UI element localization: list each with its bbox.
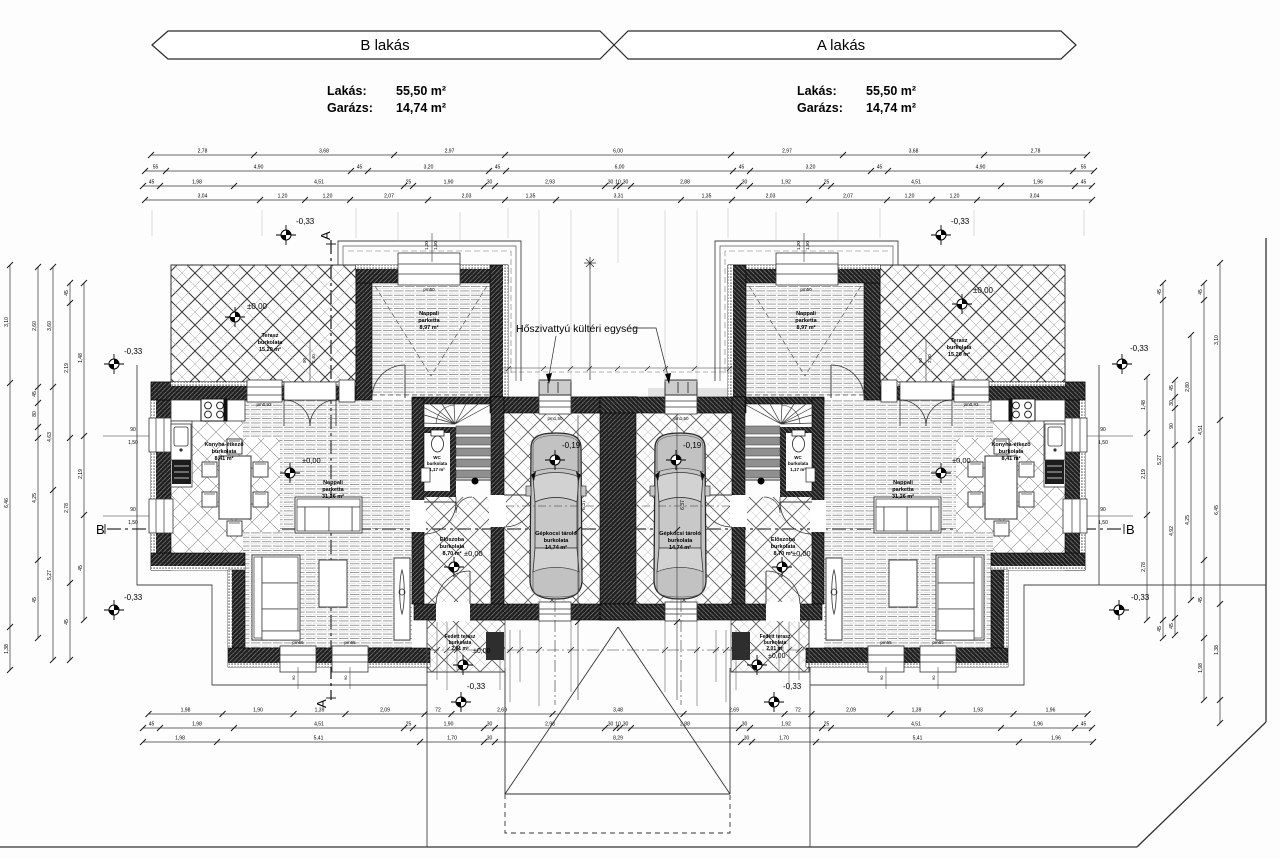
svg-text:4,51: 4,51	[314, 722, 324, 728]
svg-text:90: 90	[130, 427, 136, 433]
svg-text:-0,33: -0,33	[951, 217, 970, 226]
svg-text:1,98: 1,98	[192, 180, 202, 186]
svg-text:1,90: 1,90	[253, 708, 263, 714]
svg-text:1,50: 1,50	[433, 241, 438, 250]
svg-text:5,27: 5,27	[1157, 455, 1163, 465]
svg-text:1,92: 1,92	[781, 722, 791, 728]
svg-text:pm1,50: pm1,50	[547, 416, 563, 421]
svg-text:1,70: 1,70	[447, 736, 457, 742]
svg-text:1,20: 1,20	[278, 194, 288, 200]
svg-text:25: 25	[406, 180, 412, 186]
svg-text:45: 45	[1198, 289, 1204, 295]
svg-text:3,68: 3,68	[319, 149, 329, 155]
svg-text:30: 30	[623, 722, 629, 728]
svg-text:5,41: 5,41	[913, 736, 923, 742]
svg-text:2,78: 2,78	[198, 149, 208, 155]
svg-text:2,60: 2,60	[32, 321, 38, 331]
svg-text:Nappali: Nappali	[323, 480, 343, 486]
svg-text:30: 30	[742, 180, 748, 186]
svg-text:Előszoba: Előszoba	[440, 537, 465, 543]
svg-text:-0,19: -0,19	[683, 441, 702, 450]
svg-text:15,20 m²: 15,20 m²	[259, 346, 281, 353]
svg-text:1,39: 1,39	[912, 708, 922, 714]
svg-text:3,31: 3,31	[614, 194, 624, 200]
svg-text:4,51: 4,51	[1198, 425, 1204, 435]
svg-text:2,07: 2,07	[843, 194, 853, 200]
svg-text:45: 45	[877, 165, 883, 171]
svg-text:4,92: 4,92	[1169, 526, 1175, 536]
svg-text:6,37: 6,37	[680, 500, 686, 510]
svg-text:1,96: 1,96	[1051, 736, 1061, 742]
svg-text:4,51: 4,51	[911, 180, 921, 186]
svg-text:±0,00: ±0,00	[973, 286, 994, 295]
svg-text:6,46: 6,46	[4, 498, 10, 508]
svg-text:30: 30	[487, 722, 493, 728]
svg-text:1,98: 1,98	[175, 736, 185, 742]
svg-text:15,20 m²: 15,20 m²	[948, 351, 970, 358]
svg-text:90: 90	[918, 357, 923, 363]
svg-text:Garázs:: Garázs:	[797, 101, 843, 115]
svg-text:45: 45	[495, 165, 501, 171]
svg-text:1,20: 1,20	[323, 194, 333, 200]
svg-text:1,17 m²: 1,17 m²	[790, 467, 806, 472]
svg-text:14,74 m²: 14,74 m²	[866, 101, 916, 115]
svg-text:1,35: 1,35	[526, 194, 536, 200]
svg-text:pm0,93: pm0,93	[256, 402, 272, 407]
svg-text:10: 10	[615, 722, 621, 728]
svg-text:Hőszivattyú kültéri egység: Hőszivattyú kültéri egység	[516, 323, 638, 335]
svg-text:90: 90	[1100, 427, 1106, 433]
svg-text:45: 45	[1081, 722, 1087, 728]
svg-text:2,40: 2,40	[927, 354, 932, 363]
svg-text:90: 90	[1100, 507, 1106, 513]
svg-text:1,38: 1,38	[4, 644, 10, 654]
svg-text:burkolata: burkolata	[771, 544, 797, 550]
svg-text:14,74 m²: 14,74 m²	[545, 544, 567, 551]
svg-text:30: 30	[1169, 400, 1175, 406]
svg-text:2,09: 2,09	[846, 708, 856, 714]
svg-text:1,98: 1,98	[181, 708, 191, 714]
svg-text:8,97 m²: 8,97 m²	[797, 324, 816, 331]
svg-text:B lakás: B lakás	[360, 37, 409, 54]
svg-text:55: 55	[1081, 165, 1087, 171]
svg-text:pm0,93: pm0,93	[963, 402, 979, 407]
svg-text:pm50: pm50	[800, 287, 812, 292]
svg-text:A: A	[318, 231, 333, 240]
svg-text:1,90: 1,90	[444, 722, 454, 728]
svg-text:90: 90	[291, 675, 296, 680]
svg-text:3,10: 3,10	[4, 317, 10, 327]
svg-text:parketta: parketta	[322, 487, 344, 493]
svg-text:3,04: 3,04	[198, 194, 208, 200]
svg-text:2,69: 2,69	[729, 708, 739, 714]
svg-text:burkolata: burkolata	[999, 449, 1025, 455]
svg-text:45: 45	[1157, 626, 1163, 632]
svg-text:WC: WC	[433, 455, 441, 460]
svg-text:4,25: 4,25	[1185, 515, 1191, 525]
svg-text:3,10: 3,10	[1214, 335, 1220, 345]
svg-text:burkolata: burkolata	[947, 345, 973, 351]
svg-text:3,68: 3,68	[909, 149, 919, 155]
svg-text:burkolata: burkolata	[440, 544, 466, 550]
svg-text:45: 45	[32, 597, 38, 603]
svg-text:Lakás:: Lakás:	[797, 84, 837, 98]
svg-text:1,38: 1,38	[1214, 645, 1220, 655]
svg-text:pm1,50: pm1,50	[673, 416, 689, 421]
svg-text:45: 45	[1198, 597, 1204, 603]
svg-text:30: 30	[608, 722, 614, 728]
svg-text:72: 72	[435, 708, 441, 714]
svg-text:2,07: 2,07	[384, 194, 394, 200]
svg-text:Garázs:: Garázs:	[327, 101, 373, 115]
svg-text:45: 45	[32, 391, 38, 397]
svg-text:90: 90	[879, 675, 884, 680]
svg-text:2,97: 2,97	[782, 149, 792, 155]
svg-text:90: 90	[343, 675, 348, 680]
svg-text:45: 45	[64, 290, 70, 296]
svg-text:30: 30	[744, 736, 750, 742]
svg-text:2,03: 2,03	[766, 194, 776, 200]
svg-text:45: 45	[1157, 289, 1163, 295]
svg-text:parketta: parketta	[892, 487, 914, 493]
svg-text:pm50: pm50	[423, 287, 435, 292]
svg-text:3,48: 3,48	[613, 708, 623, 714]
svg-text:45: 45	[1169, 623, 1175, 629]
svg-text:2,78: 2,78	[1141, 562, 1147, 572]
svg-text:1,50: 1,50	[1098, 520, 1108, 526]
svg-text:A lakás: A lakás	[817, 37, 865, 54]
svg-text:1,50: 1,50	[805, 241, 810, 250]
svg-text:Nappali: Nappali	[419, 311, 439, 317]
svg-text:30: 30	[487, 736, 493, 742]
svg-text:B: B	[1126, 522, 1135, 537]
svg-text:45: 45	[1081, 180, 1087, 186]
svg-text:45: 45	[149, 722, 155, 728]
svg-text:55,50 m²: 55,50 m²	[396, 84, 446, 98]
svg-text:pm65: pm65	[292, 640, 304, 645]
svg-text:8,97 m²: 8,97 m²	[420, 324, 439, 331]
svg-text:45: 45	[739, 165, 745, 171]
svg-text:B: B	[96, 522, 105, 537]
svg-text:3,04: 3,04	[1030, 194, 1040, 200]
svg-text:45: 45	[149, 180, 155, 186]
svg-text:2,01 m²: 2,01 m²	[451, 646, 469, 652]
svg-text:1,96: 1,96	[1046, 708, 1056, 714]
svg-text:2,40: 2,40	[311, 354, 316, 363]
svg-text:4,51: 4,51	[911, 722, 921, 728]
svg-text:2,19: 2,19	[1141, 469, 1147, 479]
svg-text:8,70 m²: 8,70 m²	[774, 550, 793, 557]
svg-text:Nappali: Nappali	[893, 480, 913, 486]
svg-text:Előszoba: Előszoba	[771, 537, 796, 543]
svg-text:55: 55	[153, 165, 159, 171]
svg-text:1,20: 1,20	[905, 194, 915, 200]
svg-text:burkolata: burkolata	[788, 461, 809, 466]
svg-text:2,19: 2,19	[78, 469, 84, 479]
svg-text:WC: WC	[794, 455, 802, 460]
svg-text:8,29: 8,29	[613, 736, 623, 742]
svg-text:4,51: 4,51	[314, 180, 324, 186]
svg-text:1,17 m²: 1,17 m²	[429, 467, 445, 472]
svg-text:Nappali: Nappali	[796, 311, 816, 317]
svg-text:pm65: pm65	[344, 640, 356, 645]
svg-text:burkolata: burkolata	[668, 538, 694, 544]
svg-text:6,00: 6,00	[613, 149, 623, 155]
svg-text:Lakás:: Lakás:	[327, 84, 367, 98]
svg-text:-0,33: -0,33	[1131, 593, 1150, 602]
svg-text:45: 45	[357, 165, 363, 171]
svg-text:90: 90	[931, 675, 936, 680]
svg-text:-0,33: -0,33	[467, 682, 486, 691]
svg-text:-0,33: -0,33	[124, 593, 143, 602]
svg-text:45: 45	[78, 565, 84, 571]
svg-text:4,90: 4,90	[254, 165, 264, 171]
svg-text:90: 90	[1169, 423, 1175, 429]
svg-text:burkolata: burkolata	[258, 340, 284, 346]
svg-text:3,20: 3,20	[424, 165, 434, 171]
svg-text:1,90: 1,90	[444, 180, 454, 186]
svg-text:1,92: 1,92	[781, 180, 791, 186]
svg-text:Konyha-étkező: Konyha-étkező	[991, 442, 1031, 448]
svg-text:parketta: parketta	[795, 318, 817, 324]
svg-text:-0,33: -0,33	[124, 347, 143, 356]
svg-text:10: 10	[615, 180, 621, 186]
svg-text:14,74 m²: 14,74 m²	[669, 544, 691, 551]
svg-text:1,96: 1,96	[1033, 722, 1043, 728]
svg-text:A: A	[314, 699, 329, 708]
svg-text:8,70 m²: 8,70 m²	[443, 550, 462, 557]
svg-text:2,78: 2,78	[1031, 149, 1041, 155]
svg-text:2,69: 2,69	[497, 708, 507, 714]
svg-text:2,19: 2,19	[64, 363, 70, 373]
svg-text:2,03: 2,03	[462, 194, 472, 200]
svg-text:1,48: 1,48	[78, 353, 84, 363]
svg-text:45: 45	[1169, 385, 1175, 391]
svg-text:90: 90	[302, 357, 307, 363]
svg-text:31,26 m²: 31,26 m²	[892, 493, 914, 500]
svg-text:25: 25	[824, 722, 830, 728]
svg-text:2,93: 2,93	[545, 180, 555, 186]
svg-text:±0,00: ±0,00	[768, 653, 786, 660]
svg-text:burkolata: burkolata	[427, 461, 448, 466]
svg-text:30: 30	[487, 180, 493, 186]
svg-text:25: 25	[824, 180, 830, 186]
svg-text:±0,00: ±0,00	[473, 648, 491, 655]
svg-text:3,20: 3,20	[806, 165, 816, 171]
svg-text:2,09: 2,09	[380, 708, 390, 714]
svg-text:1,20: 1,20	[950, 194, 960, 200]
svg-text:25: 25	[406, 722, 412, 728]
svg-text:4,63: 4,63	[47, 432, 53, 442]
svg-text:burkolata: burkolata	[544, 538, 570, 544]
svg-text:Gépkocsi tároló: Gépkocsi tároló	[659, 531, 701, 537]
svg-text:-0,33: -0,33	[296, 217, 315, 226]
svg-text:30: 30	[742, 722, 748, 728]
svg-text:1,20: 1,20	[796, 241, 801, 250]
svg-text:1,98: 1,98	[1198, 663, 1204, 673]
svg-text:-0,33: -0,33	[1130, 344, 1149, 353]
svg-text:1,50: 1,50	[1098, 440, 1108, 446]
svg-text:72: 72	[795, 708, 801, 714]
svg-text:pm65: pm65	[932, 640, 944, 645]
svg-text:±0,00: ±0,00	[302, 456, 321, 465]
svg-text:30: 30	[623, 180, 629, 186]
svg-text:14,74 m²: 14,74 m²	[396, 101, 446, 115]
svg-text:1,48: 1,48	[1141, 400, 1147, 410]
svg-text:1,98: 1,98	[192, 722, 202, 728]
svg-text:1,93: 1,93	[973, 708, 983, 714]
svg-text:Terasz: Terasz	[950, 338, 967, 344]
svg-text:8,41 m²: 8,41 m²	[215, 455, 234, 462]
svg-text:±0,00: ±0,00	[792, 549, 811, 558]
svg-text:2,01 m²: 2,01 m²	[766, 646, 784, 652]
svg-text:6,37: 6,37	[581, 500, 587, 510]
svg-text:8,41 m²: 8,41 m²	[1002, 455, 1021, 462]
svg-text:5,27: 5,27	[47, 570, 53, 580]
svg-text:±0,00: ±0,00	[952, 456, 971, 465]
svg-text:5,41: 5,41	[314, 736, 324, 742]
svg-text:45: 45	[64, 619, 70, 625]
svg-text:-0,33: -0,33	[783, 682, 802, 691]
svg-text:±0,00: ±0,00	[247, 302, 268, 311]
svg-text:±0,00: ±0,00	[464, 549, 483, 558]
svg-text:parketta: parketta	[418, 318, 440, 324]
svg-text:30: 30	[608, 180, 614, 186]
svg-text:1,35: 1,35	[702, 194, 712, 200]
svg-text:80: 80	[32, 411, 38, 417]
svg-text:2,88: 2,88	[680, 180, 690, 186]
svg-text:90: 90	[130, 507, 136, 513]
svg-text:1,20: 1,20	[424, 241, 429, 250]
svg-text:Konyha-étkező: Konyha-étkező	[204, 442, 244, 448]
svg-text:pm65: pm65	[880, 640, 892, 645]
svg-text:Terasz: Terasz	[261, 333, 278, 339]
svg-text:55,50 m²: 55,50 m²	[866, 84, 916, 98]
svg-text:1,96: 1,96	[1033, 180, 1043, 186]
svg-text:1,70: 1,70	[779, 736, 789, 742]
svg-text:2,78: 2,78	[64, 503, 70, 513]
svg-text:6,00: 6,00	[615, 165, 625, 171]
svg-text:6,45: 6,45	[1214, 505, 1220, 515]
svg-text:-0,19: -0,19	[562, 441, 581, 450]
svg-text:2,97: 2,97	[445, 149, 455, 155]
svg-text:3,60: 3,60	[47, 321, 53, 331]
svg-text:31,26 m²: 31,26 m²	[322, 493, 344, 500]
svg-text:Gépkocsi tároló: Gépkocsi tároló	[535, 531, 577, 537]
svg-text:burkolata: burkolata	[212, 449, 238, 455]
svg-text:4,25: 4,25	[32, 493, 38, 503]
svg-text:4,90: 4,90	[976, 165, 986, 171]
svg-text:2,80: 2,80	[1185, 382, 1191, 392]
